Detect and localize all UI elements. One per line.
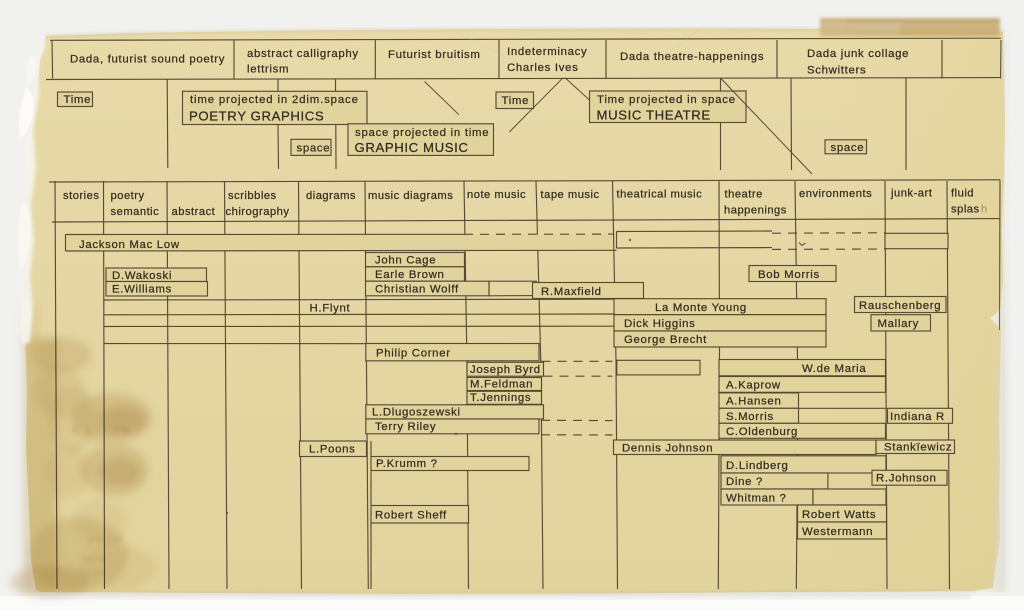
svg-text:R.Maxfield: R.Maxfield	[541, 286, 602, 298]
svg-text:Terry Riley: Terry Riley	[375, 421, 436, 433]
svg-text:Dada, futurist sound poetry: Dada, futurist sound poetry	[70, 54, 225, 66]
svg-text:Time: Time	[64, 94, 92, 106]
svg-text:happenings: happenings	[724, 205, 787, 217]
svg-text:h: h	[981, 204, 988, 216]
svg-text:theatrical music: theatrical music	[617, 189, 703, 201]
svg-text:Jackson Mac Low: Jackson Mac Low	[79, 239, 180, 251]
svg-text:E.Williams: E.Williams	[112, 284, 172, 296]
svg-text:MUSIC THEATRE: MUSIC THEATRE	[597, 108, 711, 123]
svg-text:music diagrams: music diagrams	[368, 190, 453, 202]
svg-text:Time projected in space: Time projected in space	[597, 94, 736, 106]
svg-text:S.Morris: S.Morris	[726, 411, 774, 423]
svg-text:John Cage: John Cage	[375, 255, 436, 267]
svg-text:space: space	[297, 143, 331, 155]
svg-text:R.Johnson: R.Johnson	[876, 473, 937, 485]
svg-text:junk-art: junk-art	[890, 188, 933, 200]
svg-text:PREP: PREP	[88, 533, 124, 548]
svg-text:Joseph Byrd: Joseph Byrd	[470, 364, 541, 376]
svg-text:lettrism: lettrism	[247, 64, 289, 76]
svg-text:2: 2	[95, 463, 102, 477]
svg-text:abstract calligraphy: abstract calligraphy	[247, 48, 359, 60]
svg-text:Futurist bruitism: Futurist bruitism	[388, 49, 481, 61]
svg-text:H.Flynt: H.Flynt	[310, 303, 351, 315]
svg-text:Mallary: Mallary	[878, 318, 919, 330]
svg-text:C.Oldenburg: C.Oldenburg	[726, 426, 798, 438]
svg-text:Rauschenberg: Rauschenberg	[859, 300, 941, 312]
svg-text:Westermann: Westermann	[802, 526, 873, 538]
svg-text:Dada theatre-happenings: Dada theatre-happenings	[620, 51, 764, 63]
svg-text:Stankïewicz: Stankïewicz	[884, 442, 952, 454]
svg-text:Schwitters: Schwitters	[807, 65, 866, 77]
svg-text:fluid: fluid	[951, 188, 974, 200]
svg-text:L.Dlugoszewski: L.Dlugoszewski	[372, 406, 461, 418]
svg-text:T.Jennings: T.Jennings	[470, 392, 531, 404]
svg-text:note music: note music	[467, 189, 526, 201]
svg-text:M.Feldman: M.Feldman	[470, 378, 533, 390]
svg-text:stories: stories	[63, 190, 99, 202]
svg-text:semantic: semantic	[111, 206, 160, 218]
svg-text:A.Kaprow: A.Kaprow	[726, 380, 781, 392]
svg-text:La Monte Young: La Monte Young	[655, 302, 747, 314]
svg-text:environments: environments	[799, 188, 872, 200]
svg-text:space: space	[831, 142, 865, 154]
svg-text:Dennis Johnson: Dennis Johnson	[622, 443, 713, 455]
svg-text:win cat: win cat	[81, 554, 108, 563]
svg-text:curation: curation	[80, 568, 108, 577]
svg-text:Philip Corner: Philip Corner	[376, 348, 451, 360]
svg-text:L.Poons: L.Poons	[309, 444, 356, 456]
svg-text:Dine ?: Dine ?	[726, 476, 763, 488]
svg-text:D.Wakoski: D.Wakoski	[112, 270, 172, 282]
svg-text:poetry: poetry	[111, 190, 145, 202]
svg-text:Indiana R: Indiana R	[890, 411, 945, 423]
svg-text:splas: splas	[951, 204, 980, 216]
svg-text:Indeterminacy: Indeterminacy	[507, 46, 587, 58]
svg-text:diagrams: diagrams	[306, 190, 356, 202]
svg-text:George Brecht: George Brecht	[624, 334, 707, 346]
svg-text:scribbles: scribbles	[228, 190, 277, 202]
svg-text:theatre: theatre	[725, 189, 763, 201]
svg-text:Christian Wolff: Christian Wolff	[375, 283, 459, 295]
svg-text:A.Hansen: A.Hansen	[726, 396, 781, 408]
svg-text:Robert Sheff: Robert Sheff	[375, 510, 447, 522]
svg-text:abstract: abstract	[172, 206, 216, 218]
svg-text:Robert Watts: Robert Watts	[802, 509, 876, 521]
svg-text:B STROM: B STROM	[72, 426, 132, 437]
svg-text:W.de Maria: W.de Maria	[802, 363, 866, 375]
svg-text:tape music: tape music	[541, 189, 600, 201]
svg-text:time projected in 2dim.space: time projected in 2dim.space	[190, 94, 359, 106]
svg-text:chirography: chirography	[226, 206, 290, 218]
svg-text:Bob Morris: Bob Morris	[758, 269, 820, 281]
svg-text:Earle Brown: Earle Brown	[375, 269, 445, 281]
svg-text:space projected in time: space projected in time	[355, 127, 489, 139]
svg-text:GRAPHIC MUSIC: GRAPHIC MUSIC	[355, 140, 469, 155]
svg-text:D.Lindberg: D.Lindberg	[726, 460, 789, 472]
svg-text:Dick Higgins: Dick Higgins	[624, 318, 695, 330]
svg-text:POETRY GRAPHICS: POETRY GRAPHICS	[189, 109, 324, 124]
svg-text:Time: Time	[502, 95, 530, 107]
svg-text:P.Krumm ?: P.Krumm ?	[376, 458, 438, 470]
svg-text:Dada junk collage: Dada junk collage	[807, 48, 909, 60]
svg-text:Whitman ?: Whitman ?	[726, 493, 787, 505]
